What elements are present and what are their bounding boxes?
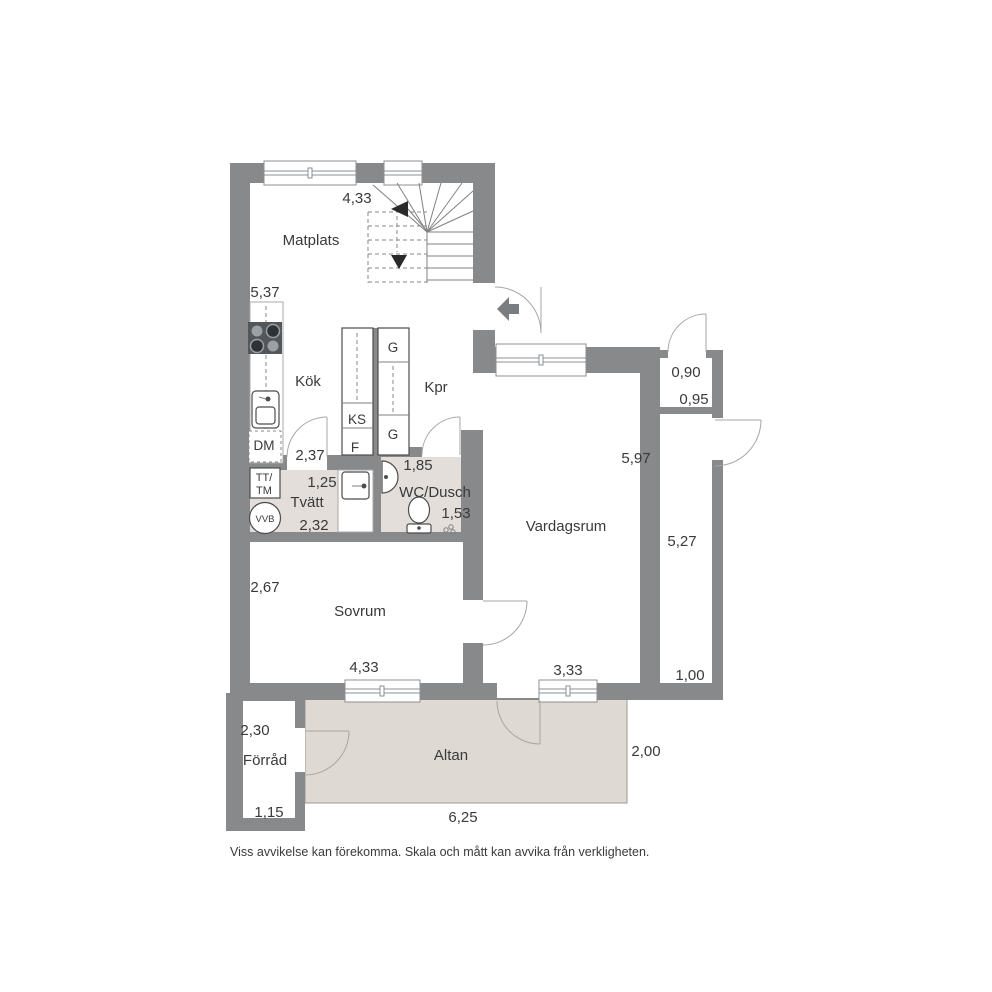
vvb-label: VVB: [255, 514, 274, 525]
staircase: [368, 183, 473, 283]
kpr-label: Kpr: [424, 379, 447, 396]
altan-label: Altan: [434, 747, 468, 764]
wc-dusch-label: WC/Dusch: [399, 484, 471, 501]
disclaimer-text: Viss avvikelse kan förekomma. Skala och …: [230, 845, 649, 859]
forrad-label: Förråd: [243, 752, 287, 769]
dim-forrad-width: 1,15: [254, 804, 283, 821]
matplats-label: Matplats: [283, 232, 340, 249]
sovrum-label: Sovrum: [334, 603, 386, 620]
tvatt-label: Tvätt: [290, 494, 324, 511]
dim-kok-door: 2,37: [295, 447, 324, 464]
toilet-icon: [407, 497, 431, 533]
g-lower-label: G: [388, 427, 399, 442]
floor-plan-svg: Matplats Kök Kpr Tvätt WC/Dusch Vardagsr…: [0, 0, 992, 992]
dm-label: DM: [254, 438, 275, 453]
window-sovrum: [345, 680, 420, 702]
laundry-sink-icon: [342, 472, 369, 499]
window-matplats: [264, 161, 356, 185]
kok-label: Kök: [295, 373, 321, 390]
window-vardagsrum-top: [496, 344, 586, 376]
window-stair: [384, 161, 422, 185]
dim-alcove-depth: 0,95: [679, 391, 708, 408]
entry-arrow-icon: [497, 297, 519, 321]
wall-segment: [226, 701, 243, 818]
wall-segment: [226, 693, 305, 701]
sovrum-door-opening: [463, 600, 483, 643]
dim-wc-depth: 1,53: [441, 505, 470, 522]
stove-icon: [248, 322, 282, 354]
wc-door-opening: [422, 447, 460, 457]
wall-segment: [230, 163, 250, 698]
g-upper-label: G: [388, 340, 399, 355]
wall-segment: [712, 350, 723, 414]
f-label: F: [351, 440, 359, 455]
altan-door-opening: [497, 683, 540, 698]
passage-door-opening: [712, 418, 723, 460]
wall-segment: [660, 407, 712, 414]
wall-segment: [295, 772, 305, 818]
wall-segment: [473, 163, 495, 283]
wall-segment: [373, 328, 378, 445]
dim-matplats-width: 4,33: [342, 190, 371, 207]
vardagsrum-label: Vardagsrum: [526, 518, 607, 535]
dim-forrad-depth: 2,30: [240, 722, 269, 739]
wall-segment: [373, 445, 381, 540]
tm-label: TM: [256, 485, 272, 497]
wall-segment: [463, 540, 483, 600]
dim-vardagsrum-height: 5,97: [621, 450, 650, 467]
dim-tvatt-depth: 2,32: [299, 517, 328, 534]
dim-alcove-width: 0,90: [671, 364, 700, 381]
sovrum-door: [483, 601, 527, 645]
dim-passage-length: 5,27: [667, 533, 696, 550]
dim-vardagsrum-window: 3,33: [553, 662, 582, 679]
floor-plan: Matplats Kök Kpr Tvätt WC/Dusch Vardagsr…: [0, 0, 992, 992]
dim-wc-width: 1,85: [403, 457, 432, 474]
fridge-freezer-cabinet: [342, 328, 373, 455]
stair-down-arrow-icon: [391, 255, 407, 269]
window-vardagsrum-bottom: [539, 680, 597, 702]
wall-segment: [327, 455, 373, 470]
dim-sovrum-depth: 2,67: [250, 579, 279, 596]
alcove-door: [668, 314, 706, 352]
entrance-opening: [473, 283, 495, 330]
tt-label: TT/: [256, 472, 273, 484]
kitchen-sink-icon: [252, 391, 279, 428]
dim-sovrum-width: 4,33: [349, 659, 378, 676]
wall-segment: [463, 643, 483, 683]
dim-kitchen-wall: 5,37: [250, 284, 279, 301]
dim-tvatt-width: 1,25: [307, 474, 336, 491]
dim-passage-width: 1,00: [675, 667, 704, 684]
dim-altan-depth: 2,00: [631, 743, 660, 760]
forrad-door-opening: [295, 728, 305, 772]
alcove-door-opening: [668, 350, 706, 358]
ks-label: KS: [348, 412, 366, 427]
dim-altan-width: 6,25: [448, 809, 477, 826]
wall-segment: [640, 347, 660, 698]
wall-segment: [473, 330, 495, 373]
wall-segment: [295, 701, 305, 728]
